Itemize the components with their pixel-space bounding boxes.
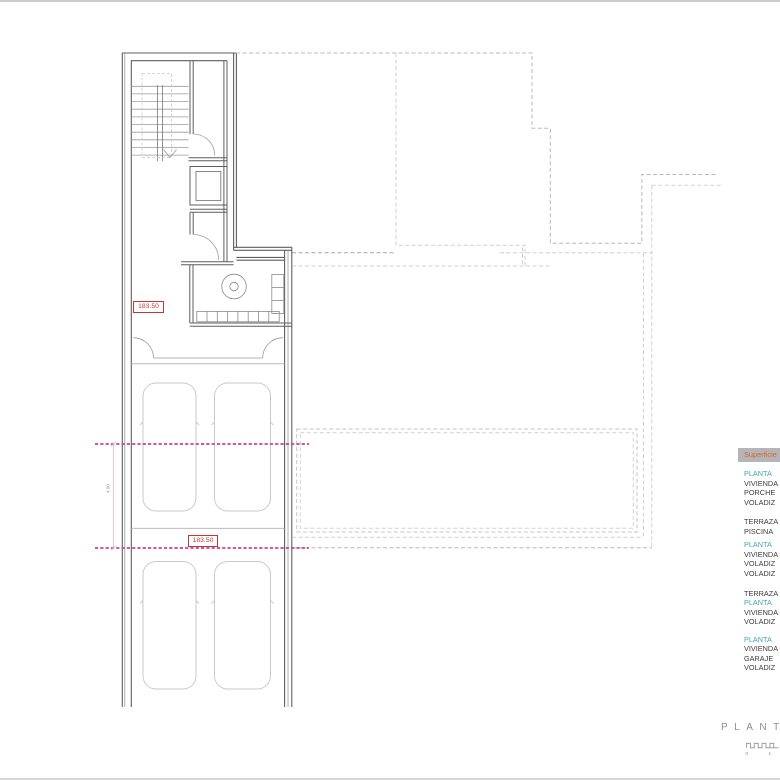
legend-row: TERRAZA xyxy=(744,517,780,527)
car-lower-right xyxy=(215,562,271,690)
scale-start-label: 0 xyxy=(746,751,749,757)
legend-row: VIVIENDA xyxy=(744,479,780,489)
round-table-center xyxy=(230,282,238,290)
kitchen-fixtures xyxy=(197,274,284,322)
door-arc-hall xyxy=(193,235,219,261)
door-swing-arcs xyxy=(193,134,219,260)
garage-lines xyxy=(131,364,284,529)
kitchen-counter xyxy=(197,311,279,321)
tall-cabinet xyxy=(272,275,284,314)
legend-row: VOLADIZ xyxy=(744,559,780,569)
legend-row: VOLADIZ xyxy=(744,617,780,627)
legend-rows: PLANTA VIVIENDA PORCHE VOLADIZ TERRAZA P… xyxy=(738,469,780,673)
floor-plan-sheet: 0 1 183.50 183.50 4.90 Superficie PLANTA… xyxy=(0,0,780,780)
exterior-walls xyxy=(122,53,292,707)
car-upper-left xyxy=(143,383,196,511)
dimension-line xyxy=(111,442,116,551)
legend-row: TERRAZA xyxy=(744,589,780,599)
floor-plan-drawing: 0 1 xyxy=(0,2,780,780)
round-table xyxy=(222,274,247,299)
area-label-lower: 183.50 xyxy=(188,535,218,547)
legend-row: PLANTA xyxy=(744,540,780,550)
car-lower-left xyxy=(143,562,196,690)
legend-row: GARAJE xyxy=(744,654,780,664)
legend-row: VIVIENDA xyxy=(744,608,780,618)
legend-row: VOLADIZ xyxy=(744,498,780,508)
legend-row: PISCINA xyxy=(744,527,780,537)
legend-row: VIVIENDA xyxy=(744,644,780,654)
staircase xyxy=(131,74,188,162)
dimension-label: 4.90 xyxy=(106,481,111,497)
legend-row: PORCHE xyxy=(744,488,780,498)
legend-row: VIVIENDA xyxy=(744,550,780,560)
terrace-dashed-outline xyxy=(292,429,652,548)
entry-ramp-arcs xyxy=(133,338,283,358)
elevator-shaft xyxy=(190,167,227,206)
legend-row: PLANTA xyxy=(744,635,780,645)
car-mirrors xyxy=(140,422,274,604)
section-lines xyxy=(95,444,309,548)
legend-row: PLANTA xyxy=(744,598,780,608)
surface-legend: Superficie PLANTA VIVIENDA PORCHE VOLADI… xyxy=(738,448,780,673)
legend-row: VOLADIZ xyxy=(744,569,780,579)
door-arc-bathroom xyxy=(193,134,215,156)
drawing-title: PLANT xyxy=(721,722,780,733)
area-label-upper: 183.50 xyxy=(133,301,164,313)
scale-end-label: 1 xyxy=(769,751,772,757)
upper-floor-dashed-outline xyxy=(236,53,723,548)
stair-direction-arrow xyxy=(164,150,177,158)
legend-row: PLANTA xyxy=(744,469,780,479)
legend-header: Superficie xyxy=(738,448,780,462)
car-upper-right xyxy=(215,383,271,511)
legend-row: VOLADIZ xyxy=(744,663,780,673)
scale-bar: 0 1 xyxy=(746,743,779,757)
